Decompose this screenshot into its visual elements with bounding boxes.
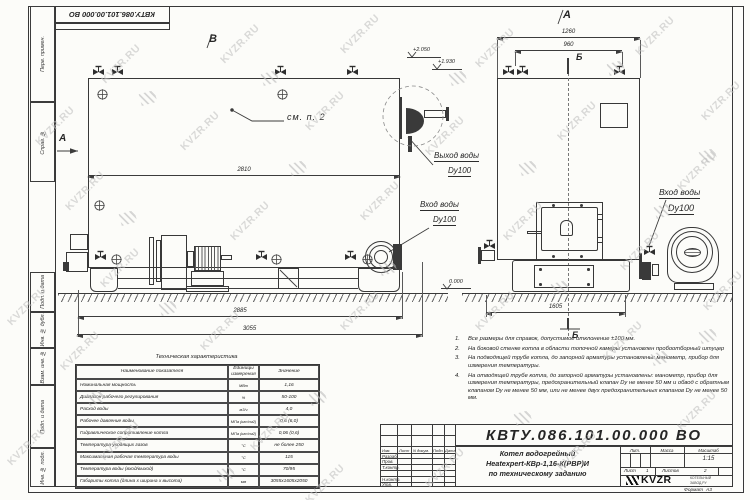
tb-sheet-label: Лист bbox=[624, 468, 636, 473]
valve-icon bbox=[613, 64, 626, 82]
frame-cell-inv-podl: Инв. № подл. bbox=[30, 448, 55, 487]
dimension-side-inner: 2810 bbox=[88, 167, 400, 176]
spec-cell: мм bbox=[228, 476, 259, 488]
spec-cell: % bbox=[228, 391, 259, 403]
spec-cell: Габариты котла (длина х ширина х высота) bbox=[76, 476, 228, 488]
dim-arrow-right bbox=[416, 334, 423, 338]
spec-cell: не более 250 bbox=[259, 439, 319, 451]
dimension-value: 2885 bbox=[78, 308, 402, 314]
outlet-label-line1: Выход воды bbox=[434, 151, 479, 162]
view-label-b: В bbox=[209, 33, 217, 45]
base-bolt bbox=[539, 283, 542, 286]
blower-hub bbox=[684, 248, 701, 257]
top-stamp-box-2 bbox=[55, 23, 170, 30]
dim-arrow-left bbox=[77, 316, 84, 320]
dimension-value: 960 bbox=[515, 42, 622, 48]
note-number: 1. bbox=[455, 336, 468, 344]
spec-cell: Максимальная рабочая температура воды bbox=[76, 452, 228, 464]
front-right-pipe-dark bbox=[642, 262, 651, 280]
valve-icon bbox=[643, 244, 656, 262]
dim-arrow-left bbox=[76, 334, 83, 338]
outlet-pipe-stub bbox=[424, 110, 446, 118]
inlet-label-line2: Dy100 bbox=[433, 215, 456, 226]
frame-cell-podp-data-2: Подп. и дата bbox=[30, 385, 55, 448]
fan-inlet-disc-1 bbox=[149, 237, 154, 285]
tb-line bbox=[411, 424, 412, 487]
tb-row-nkontr: Н.контр. bbox=[382, 477, 401, 482]
inlet-pipe-stub bbox=[393, 244, 402, 270]
note-number: 2. bbox=[455, 346, 468, 354]
tb-lit-label: Лит. bbox=[620, 448, 650, 453]
spec-cell: Гидравлическое сопротивление котла bbox=[76, 427, 228, 439]
spec-header-cell: Значение bbox=[259, 365, 319, 379]
base-bolt bbox=[587, 268, 590, 271]
inlet-label-line1: Вход воды bbox=[420, 200, 459, 211]
outlet-flange-bar bbox=[399, 97, 402, 139]
product-title-line3: по техническому заданию bbox=[455, 469, 620, 478]
tb-line bbox=[718, 467, 719, 475]
detail-callout: см. п. 2 bbox=[287, 112, 326, 122]
side-fitting-box-1 bbox=[70, 234, 88, 250]
tb-line bbox=[380, 435, 455, 436]
note-text: На отводящей трубе котла, до запорной ар… bbox=[468, 373, 732, 404]
inlet-flange-inner bbox=[374, 250, 388, 264]
section-label-b-bottom: Б bbox=[572, 330, 578, 340]
dimension-value: 1260 bbox=[497, 29, 640, 35]
lifting-lug-icon bbox=[111, 252, 122, 270]
section-label-b-top: Б bbox=[576, 52, 582, 62]
product-title-line2: Heatexpert-КВр-1,16-К(РВР)И bbox=[455, 459, 620, 468]
dimension-line bbox=[78, 316, 402, 317]
valve-icon bbox=[516, 64, 529, 82]
dim-arrow-right bbox=[634, 37, 641, 41]
tb-line bbox=[444, 424, 445, 487]
frame-cell-perv-primen: Перв. примен. bbox=[30, 6, 55, 102]
lifting-lug-icon bbox=[362, 252, 373, 270]
elevation-top-value: +2.050 bbox=[413, 47, 430, 53]
skid-rail-top bbox=[118, 278, 358, 279]
front-inlet-label-line2: Dy100 bbox=[668, 203, 694, 215]
fan-scroll-housing bbox=[161, 235, 187, 290]
tb-col-ndokum: N докум. bbox=[413, 448, 429, 453]
spec-cell: МПа (кгс/см2) bbox=[228, 427, 259, 439]
dimension-side-total: 3055 bbox=[77, 326, 422, 335]
spec-header-cell: Наименование показателя bbox=[76, 365, 228, 379]
frame-cell-inv-dubl: Инв. № дубл. bbox=[30, 312, 55, 348]
dimension-line bbox=[515, 50, 622, 51]
dimension-front-valves: 960 bbox=[515, 42, 622, 51]
tb-sheets-label: Листов bbox=[662, 468, 679, 473]
door-handle bbox=[527, 231, 542, 234]
dim-arrow-right bbox=[619, 312, 626, 316]
frame-label: Перв. примен. bbox=[40, 36, 46, 72]
skid-rail-bottom bbox=[118, 288, 358, 289]
front-centerline bbox=[568, 58, 569, 336]
format-label: Формат bbox=[684, 488, 703, 493]
note-item: 3.На подводящей трубе котла, до запорной… bbox=[455, 355, 732, 370]
frame-label: Справ. № bbox=[40, 130, 46, 155]
note-text: На подводящей трубе котла, до запорной а… bbox=[468, 355, 732, 370]
tb-line bbox=[620, 453, 733, 454]
dimension-front-top: 1260 bbox=[497, 29, 640, 38]
note-number: 3. bbox=[455, 355, 468, 370]
kvzr-logo-caption-2: ЗАВОД.РУ bbox=[690, 481, 707, 485]
top-stamp-box: КВТУ.086.101.00.000 ВО bbox=[55, 6, 170, 23]
spec-cell: Номинальная мощность bbox=[76, 379, 228, 391]
frame-label: Подп. и дата bbox=[40, 275, 46, 309]
spec-cell: 3055х1605х2050 bbox=[259, 476, 319, 488]
dimension-line bbox=[77, 334, 422, 335]
kvzr-logo-text: KVZR bbox=[641, 474, 672, 486]
spec-cell: 0,6 (6,0) bbox=[259, 415, 319, 427]
spec-cell: 1,16 bbox=[259, 379, 319, 391]
dim-arrow-right bbox=[394, 175, 401, 179]
spec-cell: 115 bbox=[259, 452, 319, 464]
note-text: На боковой стенке котла в области топочн… bbox=[468, 346, 724, 354]
dim-arrow-right bbox=[396, 316, 403, 320]
front-base-hatch bbox=[534, 265, 594, 288]
tb-scale-value: 1:15 bbox=[684, 456, 733, 462]
dim-arrow-left bbox=[87, 175, 94, 179]
frame-cell-sprav-no: Справ. № bbox=[30, 102, 55, 182]
spec-cell: м3/ч bbox=[228, 403, 259, 415]
tb-sheets-value: 2 bbox=[704, 468, 707, 473]
spec-cell: 50-100 bbox=[259, 391, 319, 403]
notes-list: 1.Все размеры для справок, допустимое от… bbox=[455, 336, 732, 405]
tb-line bbox=[630, 453, 631, 468]
valve-icon bbox=[94, 249, 107, 267]
view-label-a: А bbox=[563, 9, 571, 21]
front-right-pipe-stub bbox=[652, 264, 659, 276]
door-hinge-top bbox=[597, 214, 603, 220]
spec-cell: Диапазон рабочего регулирования bbox=[76, 391, 228, 403]
outlet-pipe-end-flange bbox=[446, 107, 449, 121]
spec-cell: °С bbox=[228, 452, 259, 464]
spec-cell: °С bbox=[228, 439, 259, 451]
tb-line bbox=[620, 475, 733, 476]
blower-foot bbox=[674, 283, 714, 290]
dimension-value: 2810 bbox=[88, 167, 400, 173]
spec-cell: МПа (кгс/см2) bbox=[228, 415, 259, 427]
dimension-line bbox=[88, 175, 400, 176]
elevation-mid-value: +1.930 bbox=[438, 59, 455, 65]
spec-cell: Рабочее давление воды bbox=[76, 415, 228, 427]
kvzr-logo-caption-1: КОТЕЛЬНЫЙ bbox=[690, 476, 711, 480]
tb-mass-label: Масса bbox=[650, 448, 684, 453]
frame-label: Инв. № подл. bbox=[40, 451, 46, 485]
spec-table: Наименование показателяЕдиницы измерения… bbox=[75, 364, 320, 489]
door-bolt bbox=[552, 255, 555, 258]
dim-arrow-left bbox=[496, 37, 503, 41]
spec-cell: Расход воды bbox=[76, 403, 228, 415]
spec-cell: МВт bbox=[228, 379, 259, 391]
tb-row-utv: Утв. bbox=[382, 482, 392, 487]
base-bolt bbox=[587, 283, 590, 286]
frame-cell-vzam-inv: Взам. инв. № bbox=[30, 348, 55, 385]
motor-shaft bbox=[221, 255, 232, 260]
spec-header-cell: Единицы измерения bbox=[228, 365, 259, 379]
door-bolt bbox=[580, 204, 583, 207]
valve-icon bbox=[92, 64, 105, 82]
side-foot-left bbox=[90, 268, 118, 292]
tb-row-tkontr: Т.контр. bbox=[382, 465, 400, 470]
lifting-lug-icon bbox=[97, 87, 108, 105]
dim-arrow-right bbox=[616, 50, 623, 54]
valve-icon bbox=[346, 64, 359, 82]
frame-label: Взам. инв. № bbox=[40, 350, 46, 384]
spec-cell: 70/95 bbox=[259, 464, 319, 476]
dim-arrow-left bbox=[485, 312, 492, 316]
inspection-panel bbox=[600, 103, 628, 128]
door-lock-glyph bbox=[560, 220, 573, 236]
side-fitting-dark bbox=[63, 262, 69, 271]
tb-col-podp: Подп. bbox=[433, 448, 444, 453]
motor-foot bbox=[186, 286, 229, 292]
elevation-zero-line bbox=[441, 288, 471, 289]
base-bolt bbox=[539, 268, 542, 271]
tb-col-izm: Изм. bbox=[382, 448, 391, 453]
tb-col-data: Дата bbox=[445, 448, 456, 453]
drawing-sheet: Перв. примен. Справ. № Подп. и дата Инв.… bbox=[0, 0, 750, 500]
dimension-front-base: 1605 bbox=[486, 304, 625, 313]
tb-col-list: Лист bbox=[399, 448, 409, 453]
note-number: 4. bbox=[455, 373, 468, 404]
outlet-drain-bar bbox=[408, 136, 412, 152]
outlet-label-line2: Dy100 bbox=[448, 166, 471, 177]
top-stamp-number: КВТУ.086.101.00.000 ВО bbox=[69, 10, 155, 19]
spec-cell: Температура воды (вход/выход) bbox=[76, 464, 228, 476]
product-title-line1: Котел водогрейный bbox=[455, 449, 620, 458]
dimension-value: 1605 bbox=[486, 304, 625, 310]
motor-body bbox=[194, 246, 221, 271]
frame-label: Инв. № дубл. bbox=[40, 313, 46, 346]
tb-row-razrab: Разраб. bbox=[382, 454, 398, 459]
note-item: 4.На отводящей трубе котла, до запорной … bbox=[455, 373, 732, 404]
door-bolt bbox=[552, 204, 555, 207]
side-fitting-box-2 bbox=[66, 252, 88, 272]
front-inlet-label-line1: Вход воды bbox=[659, 187, 700, 199]
frame-cell-podp-data-1: Подп. и дата bbox=[30, 272, 55, 312]
dimension-side-base: 2885 bbox=[78, 308, 402, 317]
lifting-lug-icon bbox=[94, 198, 105, 216]
valve-icon bbox=[255, 249, 268, 267]
valve-icon bbox=[502, 64, 515, 82]
spec-cell: °С bbox=[228, 464, 259, 476]
valve-icon bbox=[344, 249, 357, 267]
note-text: Все размеры для справок, допустимое откл… bbox=[468, 336, 635, 344]
lifting-lug-icon bbox=[277, 87, 288, 105]
elevation-mid-line bbox=[432, 69, 462, 70]
note-item: 1.Все размеры для справок, допустимое от… bbox=[455, 336, 732, 344]
elevation-zero-value: 0.000 bbox=[449, 279, 463, 285]
valve-icon bbox=[483, 238, 496, 256]
tb-scale-label: Масштаб bbox=[684, 448, 733, 453]
door-bolt bbox=[580, 255, 583, 258]
dimension-value: 3055 bbox=[77, 326, 422, 332]
valve-icon bbox=[274, 64, 287, 82]
fan-motor-coupling bbox=[187, 251, 194, 267]
tb-line bbox=[640, 453, 641, 468]
elevation-top-line bbox=[407, 57, 441, 58]
spec-table-title: Техническая характеристика bbox=[75, 354, 318, 360]
view-arrow-label-a: А bbox=[59, 133, 66, 144]
door-hinge-bottom bbox=[597, 237, 603, 243]
ash-chute-box bbox=[278, 268, 299, 289]
format-value: А3 bbox=[706, 488, 712, 493]
tb-sheet-value: 1 bbox=[646, 468, 649, 473]
valve-icon bbox=[111, 64, 124, 82]
note-item: 2.На боковой стенке котла в области топо… bbox=[455, 346, 732, 354]
spec-cell: 0,06 (0,6) bbox=[259, 427, 319, 439]
tb-row-prov: Пров. bbox=[382, 459, 394, 464]
frame-label: Подп. и дата bbox=[40, 400, 46, 434]
dim-arrow-left bbox=[514, 50, 521, 54]
motor-base bbox=[191, 271, 224, 286]
spec-cell: 4,0 bbox=[259, 403, 319, 415]
spec-cell: Температура уходящих газов bbox=[76, 439, 228, 451]
dimension-line bbox=[486, 312, 625, 313]
tb-line bbox=[432, 424, 433, 487]
dimension-line bbox=[497, 37, 640, 38]
lifting-lug-icon bbox=[271, 252, 282, 270]
